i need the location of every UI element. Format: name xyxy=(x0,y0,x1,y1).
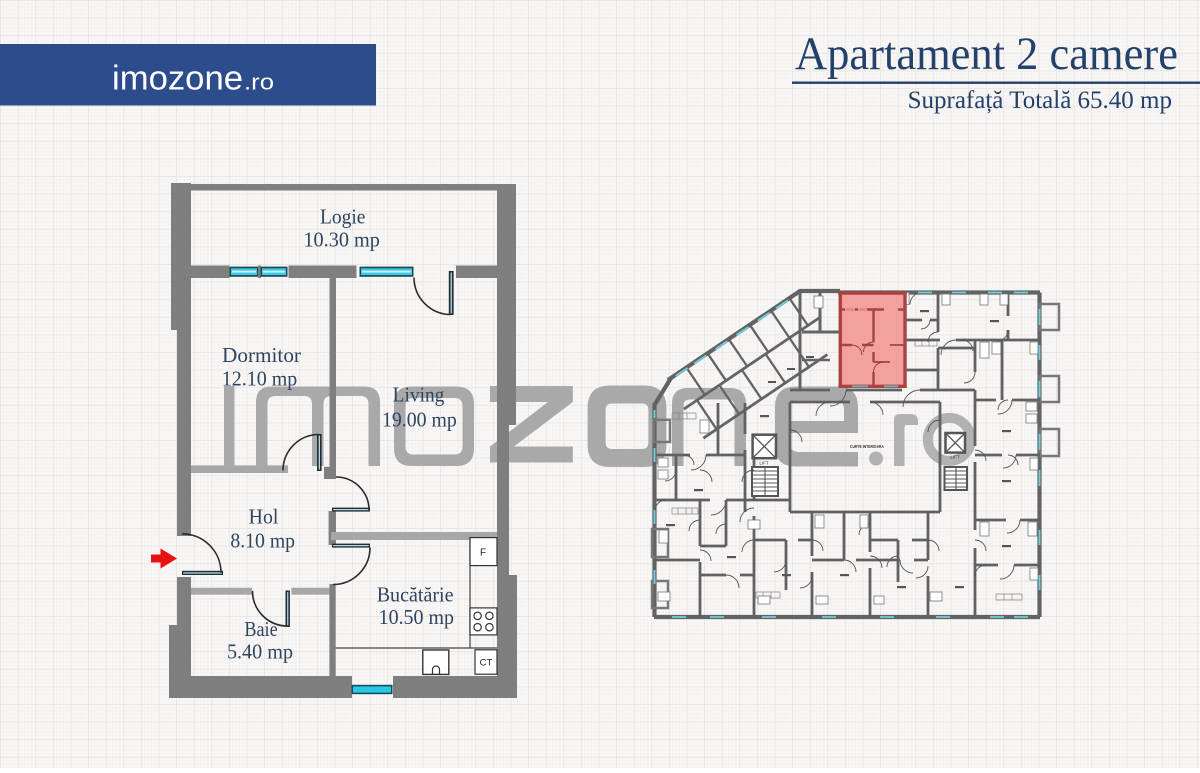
svg-text:Apartament 2 camere: Apartament 2 camere xyxy=(795,28,1178,80)
svg-text:Bucătărie: Bucătărie xyxy=(377,583,454,607)
svg-text:Suprafață Totală 65.40 mp: Suprafață Totală 65.40 mp xyxy=(908,87,1172,114)
svg-text:CT: CT xyxy=(480,658,493,669)
svg-text:.ro: .ro xyxy=(244,69,274,94)
svg-text:10.50 mp: 10.50 mp xyxy=(379,605,454,629)
svg-text:Dormitor: Dormitor xyxy=(222,343,301,367)
svg-text:F: F xyxy=(480,548,486,559)
svg-text:5.40 mp: 5.40 mp xyxy=(227,639,293,663)
svg-text:Logie: Logie xyxy=(320,205,366,229)
svg-text:CURTE INTERIOARA: CURTE INTERIOARA xyxy=(850,444,884,449)
svg-text:19.00 mp: 19.00 mp xyxy=(382,407,457,431)
svg-text:imozone: imozone xyxy=(112,59,243,97)
svg-text:LIFT: LIFT xyxy=(759,461,769,466)
svg-text:10.30 mp: 10.30 mp xyxy=(303,228,380,252)
svg-text:Baie: Baie xyxy=(244,617,277,641)
svg-text:12.10 mp: 12.10 mp xyxy=(222,367,298,391)
svg-text:Living: Living xyxy=(393,383,445,407)
svg-text:8.10 mp: 8.10 mp xyxy=(230,529,295,553)
svg-text:Hol: Hol xyxy=(249,505,279,529)
svg-text:LIFT: LIFT xyxy=(950,455,960,460)
